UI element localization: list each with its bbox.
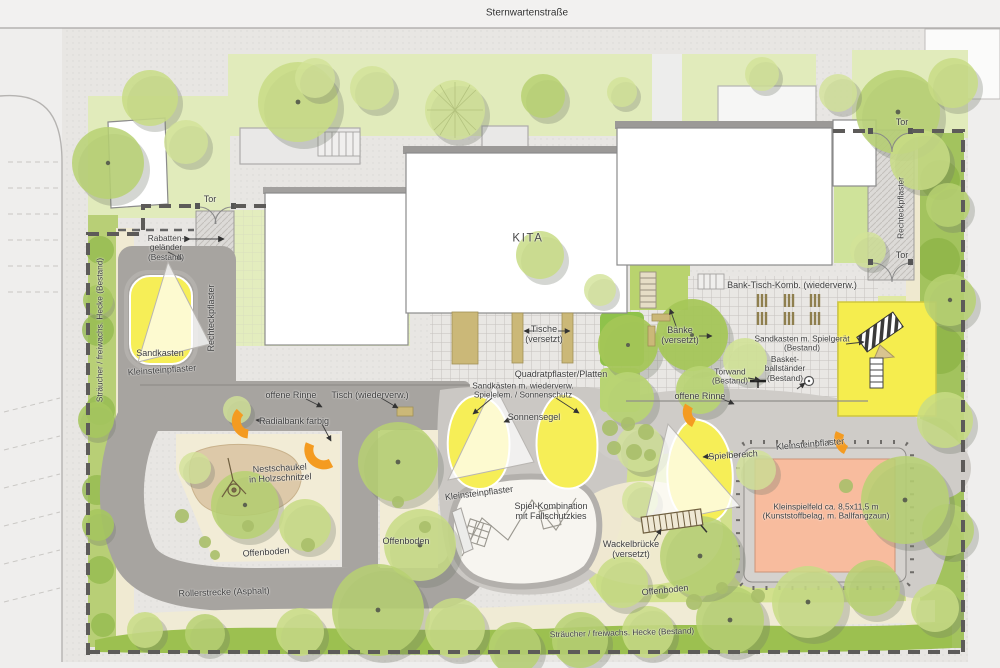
site-plan: Sternwartenstraße KITA Tor Tor Tor Rabat…	[0, 0, 1000, 668]
bench	[648, 326, 655, 346]
site-plan-canvas	[0, 0, 1000, 668]
street-parking-stalls	[4, 162, 60, 602]
basketball-stand-icon	[805, 377, 814, 386]
bench	[652, 314, 670, 321]
building-east-wing	[617, 128, 832, 265]
building-west-wing	[265, 193, 408, 345]
table-reused	[397, 407, 413, 416]
